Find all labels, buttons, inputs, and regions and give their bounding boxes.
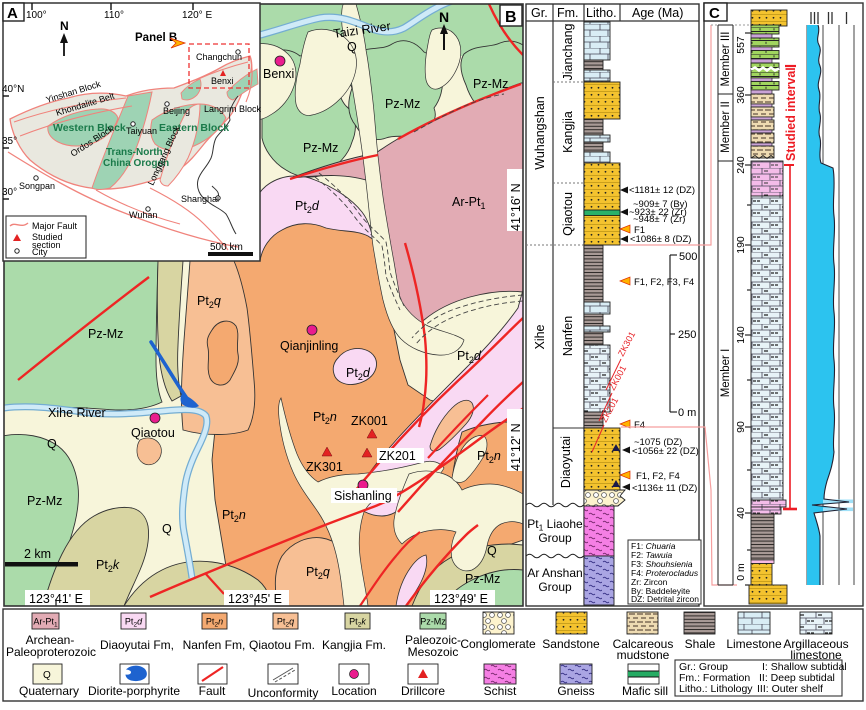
svg-text:500: 500 (679, 251, 697, 263)
svg-text:Jianchang: Jianchang (561, 23, 575, 80)
svg-text:Q: Q (47, 437, 57, 451)
svg-text:Taiyuan: Taiyuan (126, 126, 157, 136)
svg-text:ZK301: ZK301 (306, 460, 343, 474)
svg-text:Diorite-porphyrite: Diorite-porphyrite (88, 684, 180, 698)
svg-text:Qianjinling: Qianjinling (280, 339, 338, 353)
svg-text:Trans-North: Trans-North (106, 147, 163, 158)
svg-text:500 km: 500 km (210, 242, 243, 253)
svg-text:Drillcore: Drillcore (401, 684, 445, 698)
svg-text:C: C (709, 5, 720, 22)
svg-text:Limestone: Limestone (726, 637, 782, 651)
svg-text:2 km: 2 km (24, 547, 51, 561)
svg-text:30°: 30° (2, 187, 17, 198)
svg-text:City: City (32, 247, 48, 257)
svg-text:III: Outer shelf: III: Outer shelf (757, 683, 823, 695)
svg-text:Fm.: Fm. (557, 6, 579, 20)
svg-text:Member II: Member II (720, 101, 732, 153)
svg-text:250: 250 (678, 329, 696, 341)
svg-text:Schist: Schist (484, 684, 517, 698)
svg-text:Ar-Pt1: Ar-Pt1 (452, 195, 486, 211)
svg-text:Changchun: Changchun (196, 52, 242, 62)
svg-text:Nanfen Fm,: Nanfen Fm, (183, 638, 246, 652)
svg-text:Diaoyutai: Diaoyutai (559, 436, 573, 488)
svg-text:B: B (505, 9, 517, 26)
svg-text:Paleoproterozoic: Paleoproterozoic (6, 645, 96, 659)
svg-text:Unconformity: Unconformity (248, 686, 319, 700)
svg-text:Age (Ma): Age (Ma) (632, 6, 683, 20)
svg-text:Songpan: Songpan (19, 181, 55, 191)
svg-text:Benxi: Benxi (263, 67, 294, 81)
svg-text:Q: Q (347, 40, 357, 54)
svg-text:Group: Group (538, 531, 572, 545)
svg-text:557: 557 (735, 36, 747, 54)
svg-text:Pz-Mz: Pz-Mz (473, 77, 508, 91)
svg-text:A: A (7, 5, 18, 22)
svg-text:F1, F2, F3, F4: F1, F2, F3, F4 (634, 277, 694, 288)
svg-text:0 m: 0 m (678, 407, 696, 419)
svg-text:Shale: Shale (685, 637, 716, 651)
svg-text:0 m: 0 m (735, 563, 747, 581)
svg-text:Group: Group (538, 580, 572, 594)
svg-text:Ar Anshan: Ar Anshan (527, 566, 582, 580)
svg-text:N: N (439, 9, 449, 25)
svg-text:Wuhan: Wuhan (129, 210, 157, 220)
svg-text:Nanfen: Nanfen (561, 316, 575, 356)
svg-text:<1056± 22 (DZ): <1056± 22 (DZ) (632, 446, 699, 457)
svg-text:Fault: Fault (199, 684, 226, 698)
svg-text:Pz-Mz: Pz-Mz (27, 494, 62, 508)
svg-text:Member III: Member III (720, 32, 732, 87)
svg-text:Litho.: Lithology: Litho.: Lithology (679, 683, 753, 695)
svg-text:Q: Q (487, 544, 497, 558)
svg-text:Studied interval: Studied interval (784, 67, 798, 161)
svg-text:Benxi: Benxi (211, 76, 234, 86)
svg-text:Mafic sill: Mafic sill (622, 684, 668, 698)
svg-text:120° E: 120° E (182, 10, 212, 21)
svg-text:Conglomerate: Conglomerate (460, 637, 536, 651)
svg-text:110°: 110° (104, 10, 124, 21)
svg-text:mudstone: mudstone (617, 648, 670, 662)
svg-text:Pz-Mz: Pz-Mz (303, 141, 338, 155)
svg-text:Pz-Mz: Pz-Mz (385, 97, 420, 111)
svg-text:Xihe: Xihe (533, 324, 547, 349)
svg-text:Wuhangshan: Wuhangshan (533, 96, 547, 169)
svg-text:Major Fault: Major Fault (32, 221, 78, 231)
svg-text:<1086± 8 (DZ): <1086± 8 (DZ) (630, 234, 691, 245)
svg-text:41°12' N: 41°12' N (509, 423, 523, 471)
svg-text:Kangjia Fm.: Kangjia Fm. (322, 638, 386, 652)
svg-text:Langrim Block: Langrim Block (204, 104, 262, 114)
svg-text:DZ: Detrital zircon: DZ: Detrital zircon (631, 594, 699, 604)
svg-text:Kangjia: Kangjia (561, 111, 575, 153)
svg-text:Diaoyutai Fm,: Diaoyutai Fm, (100, 638, 174, 652)
svg-text:Western Block: Western Block (53, 122, 126, 134)
svg-text:F1, F2, F4: F1, F2, F4 (636, 471, 680, 482)
svg-text:Pz-Mz: Pz-Mz (88, 327, 123, 341)
svg-text:Location: Location (331, 684, 376, 698)
svg-text:Sishanling: Sishanling (334, 489, 392, 503)
svg-text:Sandstone: Sandstone (542, 637, 600, 651)
svg-text:Beijing: Beijing (163, 106, 190, 116)
svg-text:40°N: 40°N (2, 84, 24, 95)
svg-text:Gneiss: Gneiss (557, 684, 594, 698)
svg-text:Shanghai: Shanghai (181, 194, 219, 204)
svg-text:Pz-Mz: Pz-Mz (465, 572, 500, 586)
svg-text:Qiaotou Fm.: Qiaotou Fm. (249, 638, 315, 652)
svg-text:Qiaotou: Qiaotou (561, 192, 575, 236)
svg-text:Mesozoic: Mesozoic (408, 645, 459, 659)
svg-text:Xihe River: Xihe River (48, 406, 106, 420)
svg-text:100°: 100° (26, 10, 47, 21)
svg-text:Quaternary: Quaternary (19, 684, 79, 698)
svg-text:41°16' N: 41°16' N (509, 183, 523, 231)
svg-text:Gr.: Gr. (531, 6, 548, 20)
svg-text:Q: Q (43, 670, 51, 681)
svg-text:Qiaotou: Qiaotou (131, 426, 175, 440)
svg-text:Member I: Member I (720, 349, 732, 398)
svg-text:<1181± 12 (DZ): <1181± 12 (DZ) (629, 185, 695, 196)
svg-text:Pz-Mz: Pz-Mz (420, 617, 446, 627)
svg-text:Litho.: Litho. (586, 6, 617, 20)
svg-text:~948± 7 (Zr): ~948± 7 (Zr) (633, 214, 685, 225)
svg-text:ZK001: ZK001 (351, 414, 388, 428)
svg-text:N: N (60, 19, 69, 33)
svg-text:<1136± 11 (DZ): <1136± 11 (DZ) (632, 483, 697, 494)
svg-text:Q: Q (162, 522, 172, 536)
svg-text:35°: 35° (2, 136, 17, 147)
svg-text:ZK201: ZK201 (379, 449, 416, 463)
svg-text:F4: F4 (634, 420, 645, 431)
